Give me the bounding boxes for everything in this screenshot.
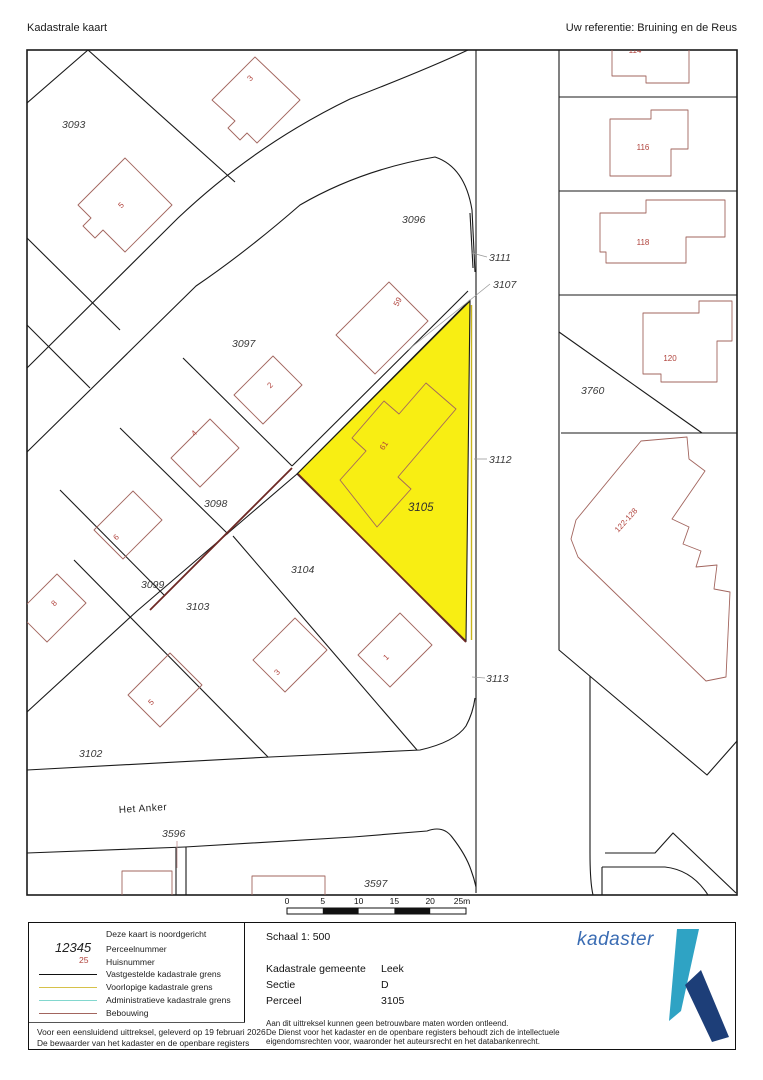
house-number: 120 [663,354,677,363]
disclaimer-line3: eigendomsrechten voor, waaronder het aut… [266,1037,540,1046]
info-label-perceel: Perceel [266,995,302,1007]
kadastrale-kaart-page: Kadastrale kaart Uw referentie: Bruining… [0,0,763,1080]
parcel-label: 3096 [402,214,426,226]
legend-label-administratief: Administratieve kadastrale grens [106,995,231,1005]
parcel-label: 3111 [489,252,511,264]
parcel-label: 3093 [62,119,86,131]
legend-label-huisnummer: Huisnummer [106,957,155,967]
parcel-label: 3103 [186,601,210,613]
footer-note-line1: Voor een eensluidend uittreksel, gelever… [37,1027,266,1037]
footer-divider-horizontal [29,1022,245,1023]
footer-divider-vertical [244,923,245,1022]
scale-tick: 20 [425,896,435,906]
kadaster-wordmark: kadaster [577,929,654,951]
north-note: Deze kaart is noordgericht [106,929,206,939]
footer-box: Deze kaart is noordgericht 12345 Perceel… [28,922,736,1050]
legend-label-perceelnummer: Perceelnummer [106,944,167,954]
legend-label-voorlopig: Voorlopige kadastrale grens [106,982,213,992]
parcel-label: 3112 [489,454,512,466]
scale-tick: 0 [285,896,290,906]
scale-tick-unit: 25m [454,896,471,906]
cadastral-map: 3093 3096 3097 3098 3099 3103 3102 3104 … [0,0,763,1080]
parcel-label: 3113 [486,673,509,685]
legend-label-bebouwing: Bebouwing [106,1008,149,1018]
info-value-sectie: D [381,979,389,991]
info-value-gemeente: Leek [381,963,404,975]
legend-house-sample: 25 [79,955,89,965]
parcel-label-highlighted: 3105 [408,502,434,514]
parcel-label: 3102 [79,748,103,760]
scale-bar: 0 5 10 15 20 25m [285,896,471,914]
info-label-gemeente: Kadastrale gemeente [266,963,366,975]
kadaster-logo-icon [649,927,729,1054]
legend-label-vastgesteld: Vastgestelde kadastrale grens [106,969,221,979]
scale-text: Schaal 1: 500 [266,931,330,943]
parcel-label: 3107 [493,279,518,291]
scale-tick: 10 [354,896,364,906]
parcel-label: 3597 [364,878,389,890]
legend-line-bebouwing [39,1013,97,1014]
house-number: 114 [629,46,642,55]
scale-tick: 15 [390,896,400,906]
legend-line-voorlopig [39,987,97,988]
legend-line-administratief [39,1000,97,1001]
house-number: 118 [637,238,650,247]
legend-parcel-sample: 12345 [55,940,91,955]
parcel-label: 3596 [162,828,186,840]
disclaimer-line2: De Dienst voor het kadaster en de openba… [266,1028,560,1037]
house-number: 116 [637,143,650,152]
footer-note-line2: De bewaarder van het kadaster en de open… [37,1038,249,1048]
parcel-label: 3104 [291,564,315,576]
info-value-perceel: 3105 [381,995,404,1007]
info-label-sectie: Sectie [266,979,295,991]
parcel-label: 3097 [232,338,257,350]
legend-line-vastgesteld [39,974,97,975]
parcel-label: 3098 [204,498,228,510]
disclaimer-line1: Aan dit uittreksel kunnen geen betrouwba… [266,1019,508,1028]
parcel-label: 3760 [581,385,605,397]
scale-tick: 5 [320,896,325,906]
parcel-label: 3099 [141,579,165,591]
